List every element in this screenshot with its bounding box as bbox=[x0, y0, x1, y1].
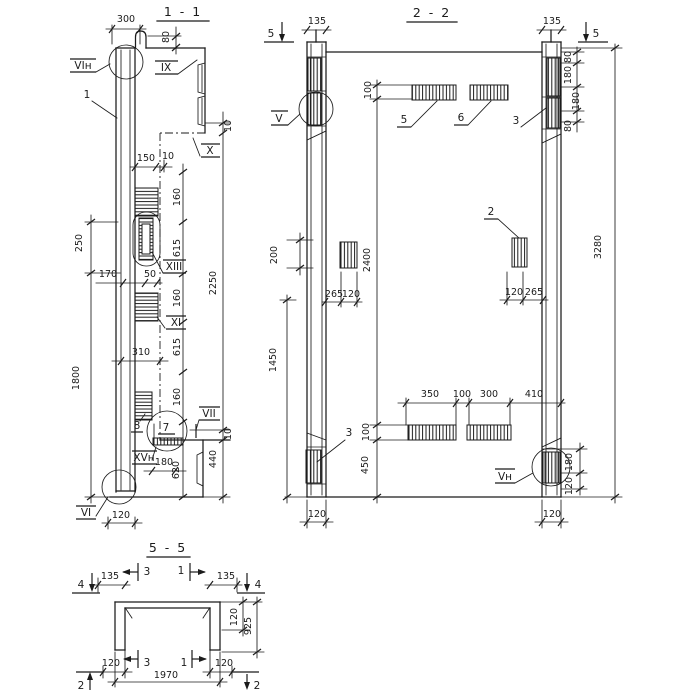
dims-foot: 120 120 bbox=[300, 500, 568, 528]
label-vi-bottom: VI bbox=[81, 507, 91, 519]
dim-135: 135 bbox=[543, 16, 561, 27]
dim-100: 100 bbox=[453, 389, 471, 400]
dims-top-5-5: 4 135 3 1 135 4 bbox=[72, 563, 265, 593]
drawing-canvas: 1 - 1 bbox=[0, 0, 700, 700]
dim-10: 10 bbox=[223, 428, 234, 440]
label-vii: VII bbox=[202, 408, 215, 420]
field-plate bbox=[467, 425, 511, 440]
dim-150: 150 bbox=[137, 153, 155, 164]
dim-300: 300 bbox=[117, 14, 135, 25]
dim-160: 160 bbox=[172, 289, 183, 307]
dims-bottom-row: 350 100 300 410 bbox=[398, 389, 565, 425]
label-xiii: XIII bbox=[166, 261, 182, 273]
cut-mark-1-top: 1 bbox=[178, 565, 185, 577]
cut-mark-3-top: 3 bbox=[144, 566, 151, 578]
cut-mark-4-right: 4 bbox=[255, 579, 262, 591]
stile-plate bbox=[306, 450, 321, 483]
stile-plate bbox=[543, 452, 560, 483]
dim-120: 120 bbox=[543, 509, 561, 520]
dim-120: 120 bbox=[112, 510, 130, 521]
dim-120: 120 bbox=[215, 658, 233, 669]
labels-1-1: VIн 1 IX X XIII XI 8 7 VII XVн bbox=[70, 59, 220, 519]
column-outline bbox=[116, 31, 146, 492]
dim-180: 180 bbox=[155, 457, 173, 468]
dim-410: 410 bbox=[525, 389, 543, 400]
engineering-drawing-sheet: 1 - 1 bbox=[0, 0, 700, 700]
dim-1450: 1450 bbox=[268, 348, 279, 372]
dims-top: 300 80 150 10 bbox=[106, 14, 181, 172]
label-item-6: 6 bbox=[458, 112, 465, 124]
dims-bottom-5-5: 120 3 1 120 1970 2 2 bbox=[76, 650, 260, 692]
dim-925: 925 bbox=[243, 617, 254, 635]
cut-mark-4-left: 4 bbox=[78, 579, 85, 591]
label-ix: IX bbox=[161, 62, 171, 74]
dim-100: 100 bbox=[363, 81, 374, 99]
cut-mark-5-right: 5 bbox=[593, 28, 600, 40]
cut-mark-5-left: 5 bbox=[268, 28, 275, 40]
section-5-5-title: 5 - 5 bbox=[149, 540, 187, 555]
dim-265: 265 bbox=[325, 289, 343, 300]
dim-1970: 1970 bbox=[154, 670, 178, 681]
dim-135: 135 bbox=[308, 16, 326, 27]
cut-mark-2-left: 2 bbox=[78, 680, 85, 692]
slot-hole bbox=[142, 224, 150, 254]
dim-2400: 2400 bbox=[362, 248, 373, 272]
label-item-3-bottom: 3 bbox=[346, 427, 353, 439]
dim-450: 450 bbox=[360, 456, 371, 474]
dim-80: 80 bbox=[563, 120, 574, 132]
stile-plate bbox=[547, 98, 560, 128]
dim-170: 170 bbox=[99, 269, 117, 280]
section-1-1-title: 1 - 1 bbox=[164, 4, 202, 19]
dims-right-outer: 10 10 2250 440 bbox=[190, 112, 234, 503]
dim-120: 120 bbox=[342, 289, 360, 300]
dim-80: 80 bbox=[161, 31, 172, 43]
section-1-1: 1 - 1 bbox=[70, 4, 234, 529]
dims-left: 250 1800 170 50 310 120 bbox=[71, 215, 168, 529]
label-x: X bbox=[206, 145, 213, 157]
dim-180: 180 bbox=[563, 66, 574, 84]
cut-mark-3-bottom: 3 bbox=[144, 657, 151, 669]
detail-circle-vi-top bbox=[109, 45, 143, 79]
dim-615: 615 bbox=[172, 338, 183, 356]
stile-plate bbox=[308, 58, 321, 91]
dim-135: 135 bbox=[101, 571, 119, 582]
dim-120: 120 bbox=[505, 287, 523, 298]
dim-440: 440 bbox=[208, 450, 219, 468]
dim-300: 300 bbox=[480, 389, 498, 400]
angle-shelf bbox=[153, 438, 183, 445]
dim-10: 10 bbox=[162, 151, 174, 162]
label-item-8: 8 bbox=[134, 420, 141, 432]
label-item-7: 7 bbox=[163, 422, 170, 434]
section-2-2-title: 2 - 2 bbox=[413, 5, 451, 20]
dim-615: 615 bbox=[172, 239, 183, 257]
dim-160: 160 bbox=[172, 188, 183, 206]
dim-135: 135 bbox=[217, 571, 235, 582]
field-plate-2 bbox=[512, 238, 527, 267]
label-xvn: XVн bbox=[133, 452, 154, 464]
dims-bottom-right-chain: 180 120 bbox=[561, 443, 587, 495]
channel-outline bbox=[115, 602, 220, 650]
dim-120: 120 bbox=[564, 477, 575, 495]
label-item-2: 2 bbox=[488, 206, 495, 218]
dim-265: 265 bbox=[525, 287, 543, 298]
label-vn: Vн bbox=[498, 471, 512, 483]
dims-plate-2: 120 265 265 120 bbox=[322, 272, 548, 307]
section-2-2: 2 - 2 bbox=[264, 5, 622, 528]
dim-10: 10 bbox=[223, 120, 234, 132]
cut-mark-1-bottom: 1 bbox=[181, 657, 188, 669]
embedded-plate bbox=[135, 293, 158, 321]
cut-mark-2-right: 2 bbox=[254, 680, 261, 692]
field-plate bbox=[408, 425, 456, 440]
dim-200: 200 bbox=[269, 246, 280, 264]
label-vi-top: VIн bbox=[74, 60, 91, 72]
dim-120: 120 bbox=[308, 509, 326, 520]
dim-1800: 1800 bbox=[71, 366, 82, 390]
dim-120: 120 bbox=[229, 608, 240, 626]
dim-160: 160 bbox=[172, 388, 183, 406]
dim-180: 180 bbox=[564, 453, 575, 471]
stile-plate bbox=[547, 58, 560, 96]
dims-right-5-5: 120 925 bbox=[220, 597, 264, 658]
dim-120: 120 bbox=[102, 658, 120, 669]
dim-350: 350 bbox=[421, 389, 439, 400]
section-5-5: 5 - 5 4 135 3 bbox=[72, 540, 265, 692]
dim-3280-text: 3280 bbox=[593, 235, 604, 259]
dims-center-chain: 100 2400 100 450 bbox=[360, 80, 412, 503]
field-plate-2 bbox=[340, 242, 357, 268]
field-plate-5 bbox=[412, 85, 456, 100]
dim-3280: 3280 bbox=[561, 44, 622, 503]
dims-right-stile-chain: 80 180 180 80 bbox=[561, 47, 584, 132]
dim-180: 180 bbox=[571, 92, 582, 110]
label-item-3-top: 3 bbox=[513, 115, 520, 127]
dim-80: 80 bbox=[563, 51, 574, 63]
label-xi: XI bbox=[171, 317, 181, 329]
stile-plate bbox=[308, 93, 321, 125]
dim-50: 50 bbox=[144, 269, 156, 280]
dim-250: 250 bbox=[74, 234, 85, 252]
dim-2250: 2250 bbox=[208, 271, 219, 295]
dim-100: 100 bbox=[361, 423, 372, 441]
label-v: V bbox=[275, 113, 283, 125]
dim-310: 310 bbox=[132, 347, 150, 358]
label-item-1: 1 bbox=[84, 89, 91, 101]
field-plate-6 bbox=[470, 85, 508, 100]
label-item-5: 5 bbox=[401, 114, 408, 126]
